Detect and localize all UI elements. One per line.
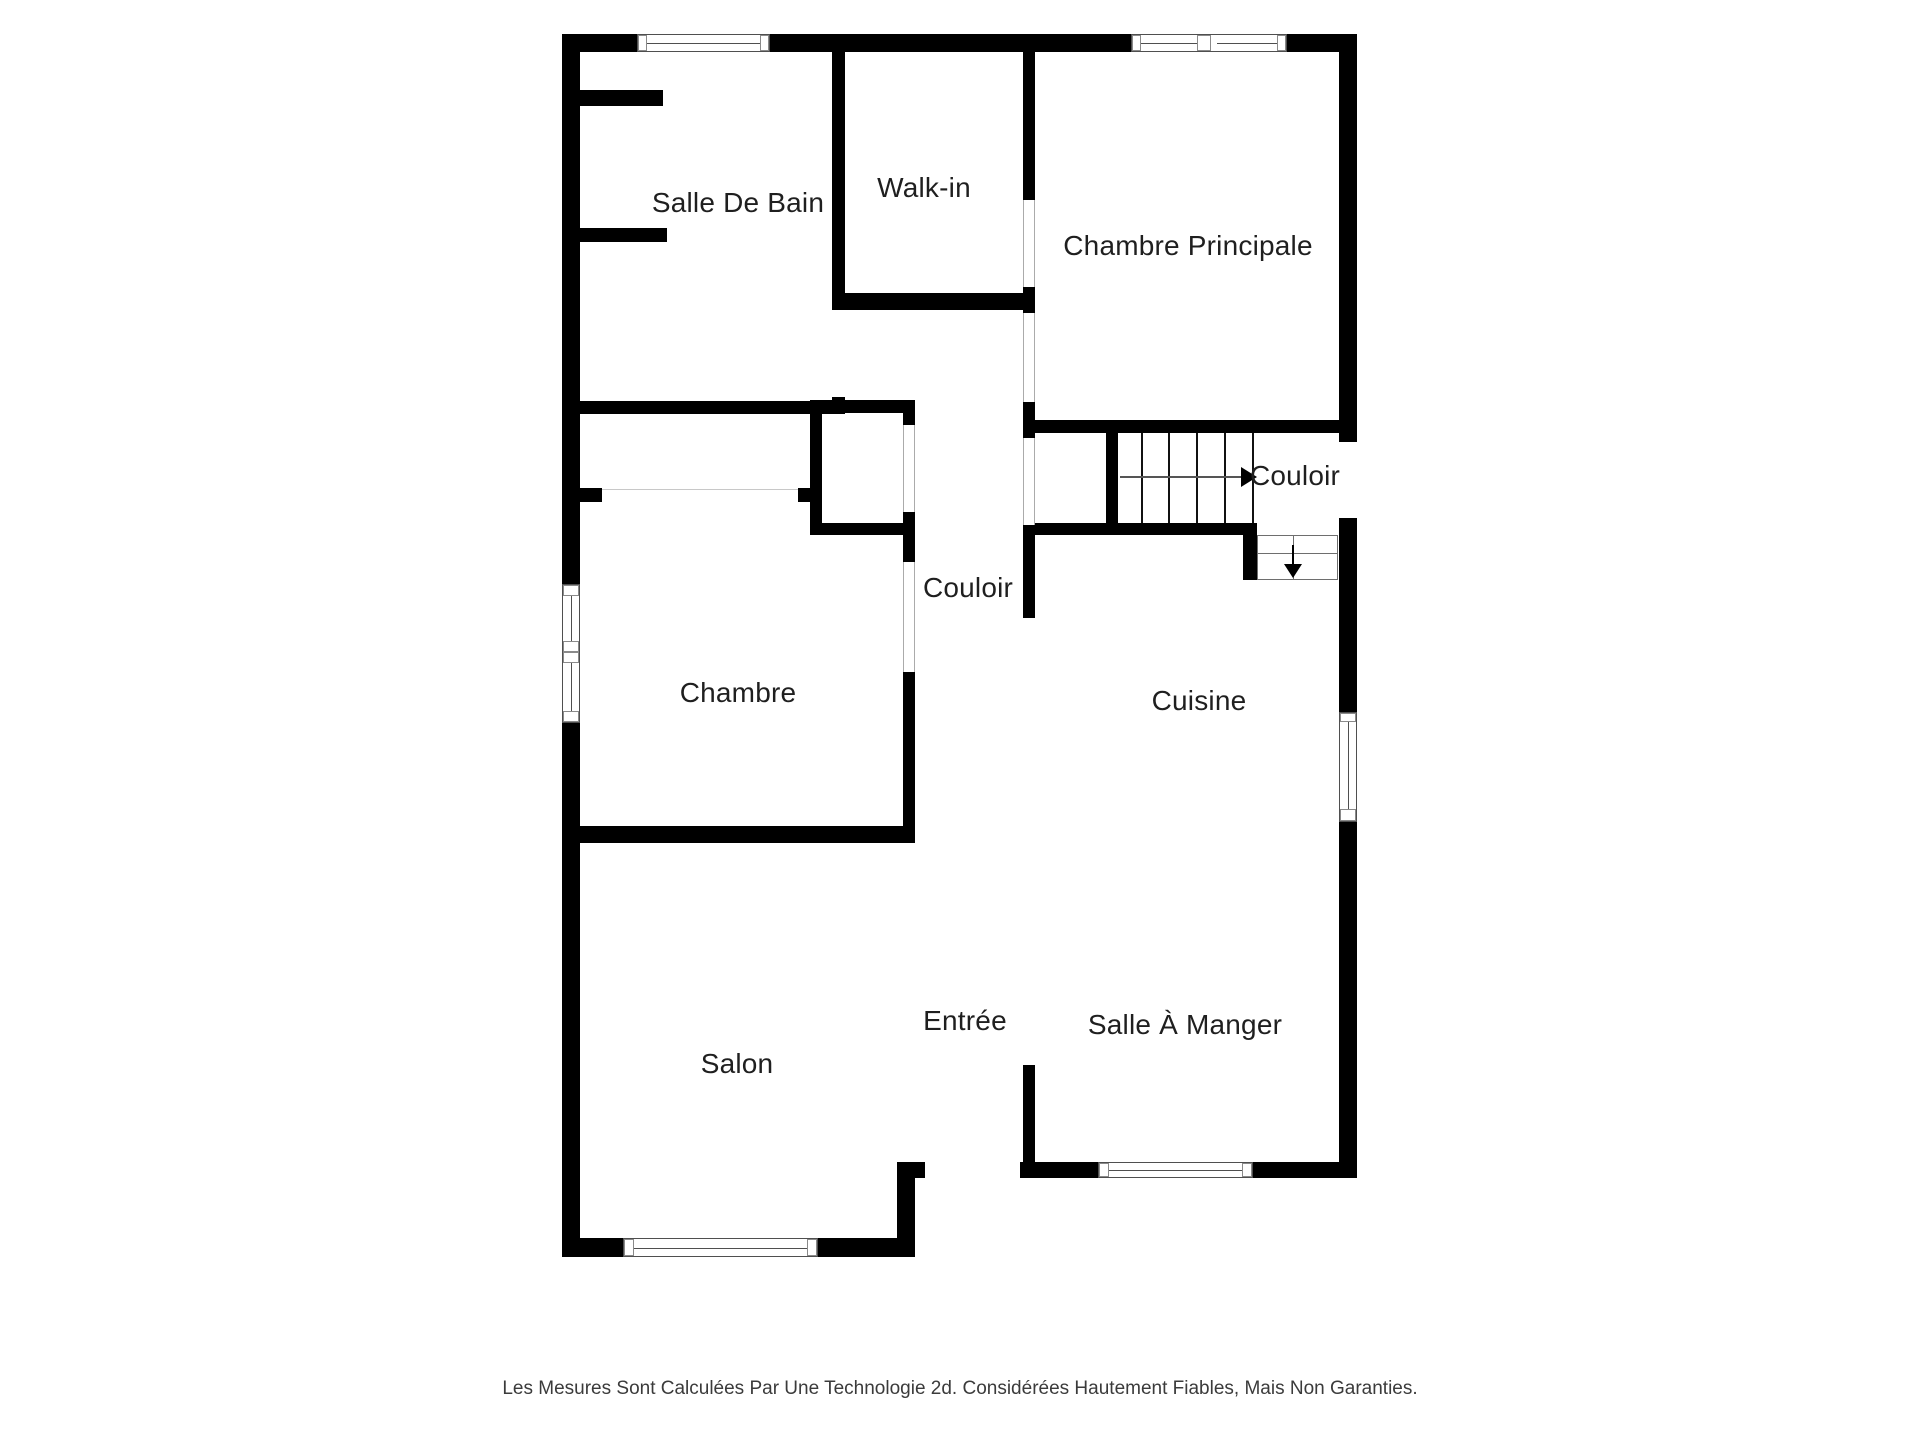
wall-sdb-stub-lower bbox=[580, 228, 667, 242]
window-cap bbox=[807, 1239, 817, 1256]
wall-outer-right-upper bbox=[1339, 34, 1357, 442]
window-glass-line bbox=[1217, 43, 1278, 44]
floor-plan: Salle De Bain Walk-in Chambre Principale… bbox=[0, 0, 1920, 1440]
door-jamb-couloir-cuisine bbox=[1023, 438, 1024, 525]
door-jamb-closet bbox=[914, 425, 915, 512]
wall-corridor-east-lower bbox=[1023, 525, 1035, 618]
door-jamb-walkin-chp bbox=[1023, 200, 1024, 287]
window-cap bbox=[563, 585, 579, 596]
stairs-up-arrow-line bbox=[1120, 476, 1243, 478]
wall-entree-sam-divider bbox=[1023, 1065, 1035, 1178]
wall-sdb-bottom bbox=[562, 401, 832, 414]
wall-stair-stub bbox=[1243, 523, 1257, 580]
stairs-grid-line bbox=[1258, 553, 1337, 554]
wall-stair-west bbox=[1106, 433, 1118, 530]
wall-walkin-chp-divider bbox=[1023, 52, 1035, 200]
stairs-down-arrow-line bbox=[1292, 545, 1294, 565]
stair-tread bbox=[1196, 433, 1198, 523]
window-glass-line bbox=[1348, 722, 1349, 813]
door-jamb-walkin-chp bbox=[1034, 200, 1035, 287]
wall-closet-west bbox=[810, 400, 822, 535]
room-label-cuisine: Cuisine bbox=[1152, 685, 1247, 717]
window-cap bbox=[638, 35, 647, 51]
window-glass-line bbox=[1109, 1170, 1244, 1171]
door-jamb-chp-entry bbox=[1034, 313, 1035, 402]
door-jamb-couloir-cuisine bbox=[1034, 438, 1035, 525]
room-label-salle-de-bain: Salle De Bain bbox=[652, 187, 824, 219]
window-salon-bottom bbox=[623, 1238, 818, 1257]
wall-sam-bottom bbox=[1253, 1162, 1357, 1178]
wall-walkin-bottom bbox=[832, 293, 1035, 310]
wall-chambre-bottom bbox=[562, 826, 915, 843]
room-label-walk-in: Walk-in bbox=[877, 172, 971, 204]
wall-sdb-walkin-divider bbox=[832, 52, 845, 310]
window-cap bbox=[1099, 1163, 1109, 1177]
window-cap bbox=[1197, 35, 1211, 51]
room-label-couloir-upper: Couloir bbox=[1250, 460, 1340, 492]
door-jamb-chambre bbox=[903, 562, 904, 672]
window-top-left bbox=[637, 34, 770, 52]
stair-tread bbox=[1141, 433, 1143, 523]
wall-entree-bottom-left bbox=[897, 1162, 925, 1178]
disclaimer-text: Les Mesures Sont Calculées Par Une Techn… bbox=[0, 1378, 1920, 1400]
window-cap bbox=[563, 652, 579, 663]
wall-sdb-stub-upper bbox=[580, 90, 663, 106]
wall-chambre-stub-left bbox=[580, 488, 602, 502]
window-glass-line bbox=[634, 1248, 809, 1249]
window-glass-line bbox=[571, 595, 572, 643]
wall-chp-bottom bbox=[1035, 420, 1357, 433]
window-sam-bottom bbox=[1098, 1162, 1253, 1178]
window-cap bbox=[563, 641, 579, 652]
window-cap bbox=[563, 711, 579, 722]
window-cap bbox=[1340, 713, 1356, 722]
room-label-chambre: Chambre bbox=[680, 677, 797, 709]
stair-tread bbox=[1224, 433, 1226, 523]
stairs-down-arrow-icon bbox=[1284, 564, 1302, 578]
window-top-right bbox=[1131, 34, 1287, 52]
room-label-salon: Salon bbox=[701, 1048, 774, 1080]
wall-closet-east-lower bbox=[903, 512, 915, 562]
wall-closet-east-upper bbox=[903, 400, 915, 425]
chambre-alcove-line bbox=[602, 489, 798, 490]
room-label-entree: Entrée bbox=[923, 1005, 1007, 1037]
stair-tread bbox=[1168, 433, 1170, 523]
room-label-couloir-central: Couloir bbox=[923, 572, 1013, 604]
window-left-wall bbox=[562, 584, 580, 723]
window-glass-line bbox=[571, 663, 572, 713]
wall-chambre-stub-right bbox=[798, 488, 810, 502]
room-label-chambre-principale: Chambre Principale bbox=[1063, 230, 1313, 262]
wall-corridor-east-junction bbox=[1023, 287, 1035, 313]
window-cap bbox=[760, 35, 769, 51]
wall-outer-right-lower bbox=[1339, 518, 1357, 1178]
door-jamb-chambre bbox=[914, 562, 915, 672]
door-jamb-closet bbox=[903, 425, 904, 512]
window-cap bbox=[1242, 1163, 1252, 1177]
window-cap bbox=[1132, 35, 1141, 51]
wall-stair-bottom bbox=[1035, 523, 1253, 535]
window-cap bbox=[1340, 809, 1356, 821]
wall-corridor-east-mid bbox=[1023, 402, 1035, 438]
door-jamb-chp-entry bbox=[1023, 313, 1024, 402]
window-glass-line bbox=[646, 43, 763, 44]
wall-closet-bottom bbox=[810, 523, 915, 535]
window-glass-line bbox=[1141, 43, 1201, 44]
window-cap bbox=[1277, 35, 1286, 51]
window-right-wall bbox=[1339, 712, 1357, 822]
room-label-salle-a-manger: Salle À Manger bbox=[1088, 1009, 1282, 1041]
wall-corridor-west bbox=[903, 672, 915, 843]
window-cap bbox=[624, 1239, 634, 1256]
wall-closet-top bbox=[810, 400, 915, 413]
